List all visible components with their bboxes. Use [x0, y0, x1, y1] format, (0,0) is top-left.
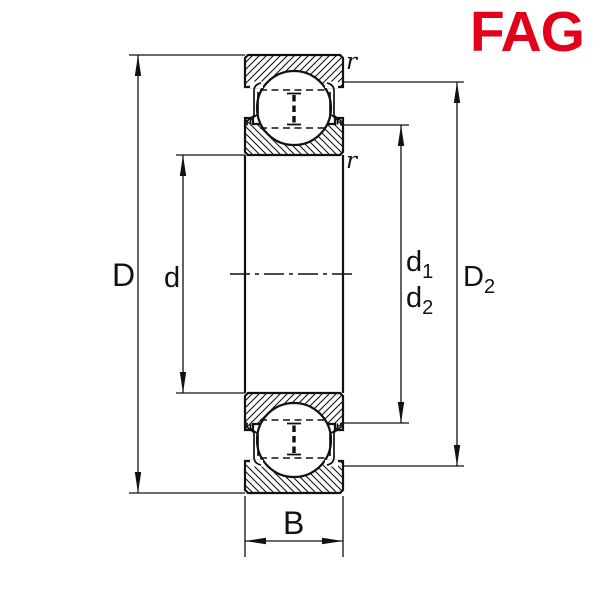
fag-logo: FAG	[470, 0, 584, 64]
arrowhead-B-left	[245, 538, 266, 544]
arrowhead-B-right	[322, 538, 343, 544]
dim-label-d2: d2	[406, 282, 433, 319]
dim-label-D2: D2	[463, 261, 495, 298]
dim-label-B: B	[283, 505, 304, 541]
arrowhead-d-up	[180, 155, 186, 176]
bearing-section-bottom	[245, 393, 343, 493]
dim-label-d1: d1	[406, 246, 433, 283]
bearing-section-top	[245, 55, 343, 155]
dim-label-d: d	[164, 262, 180, 294]
arrowhead-d1-down	[398, 402, 404, 423]
bearing-drawing-page: FAG D d d1 d2 D2	[0, 0, 600, 600]
chamfer-label-r-top: r	[346, 49, 359, 75]
dim-label-D: D	[112, 257, 135, 293]
arrowhead-D2-down	[454, 445, 460, 466]
arrowhead-d1-up	[398, 125, 404, 146]
dim-width: B	[245, 496, 343, 557]
arrowhead-D-down	[135, 472, 141, 493]
arrowhead-D2-up	[454, 82, 460, 103]
arrowhead-d-down	[180, 372, 186, 393]
chamfer-label-r-bottom: r	[346, 148, 359, 174]
bearing-cross-section-drawing: FAG D d d1 d2 D2	[0, 0, 600, 600]
arrowhead-D-up	[135, 55, 141, 76]
